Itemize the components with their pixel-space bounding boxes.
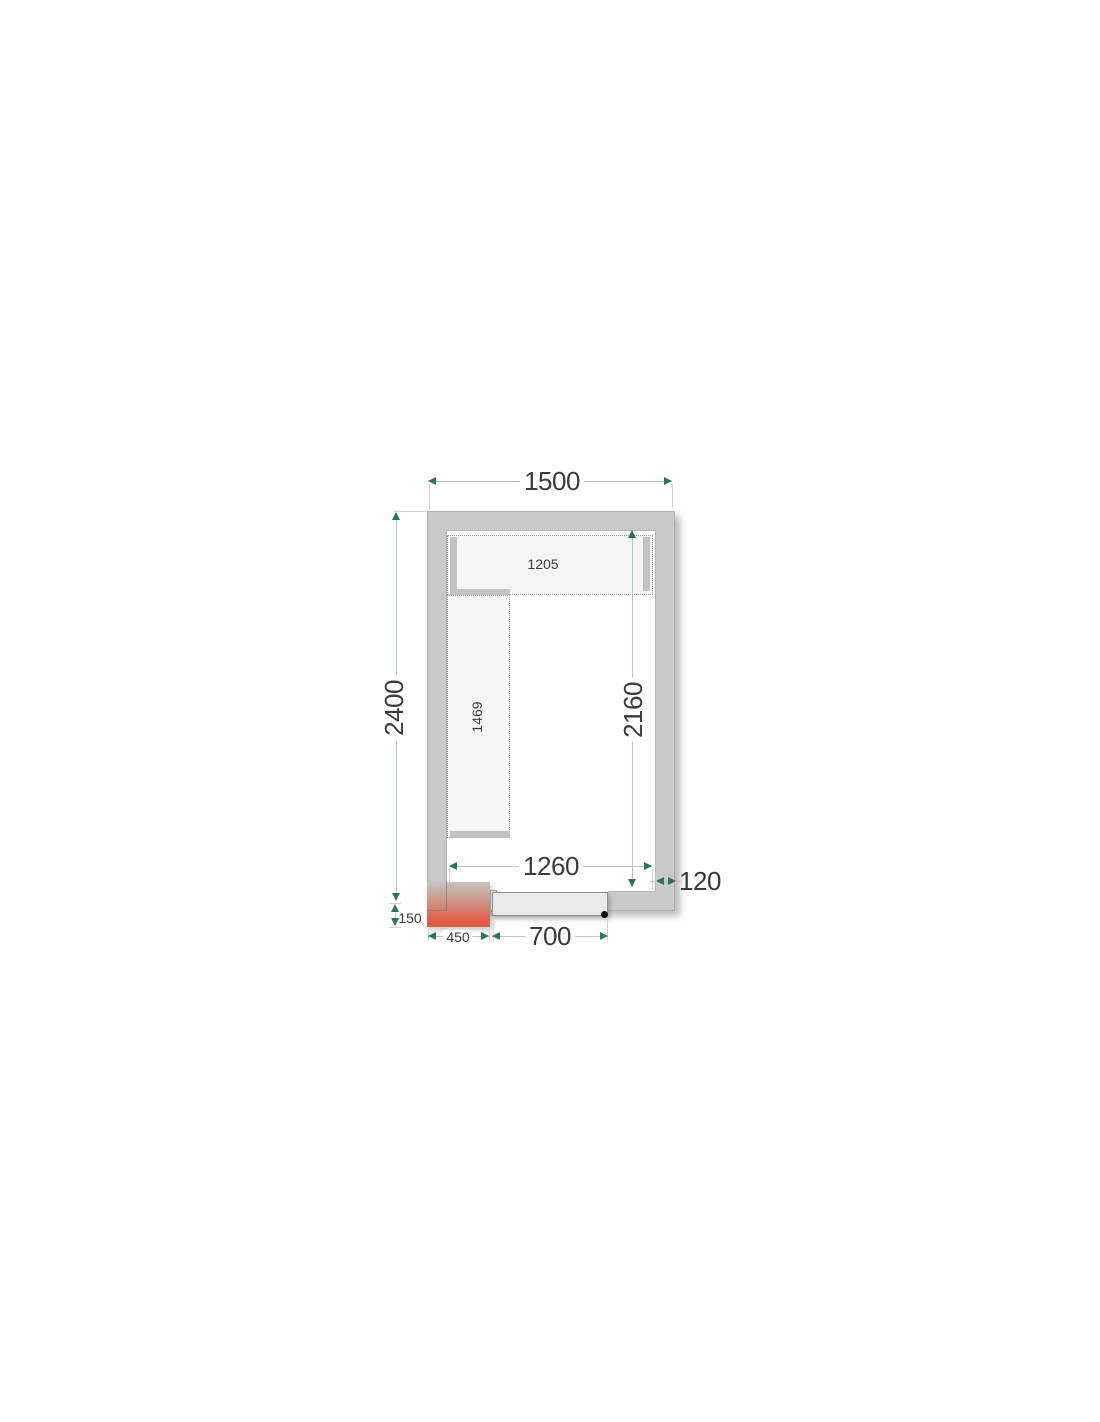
dim-inner-width-label: 1260 — [519, 853, 583, 879]
dim-inner-width-ext-right — [652, 869, 653, 890]
dim-inner-width-arrow-left-icon — [449, 862, 457, 870]
dim-outer-width-label: 1500 — [520, 468, 584, 494]
dim-outer-width-ext-left — [429, 484, 430, 510]
dim-wall-thickness-line — [650, 881, 681, 882]
dim-unit-width-arrow-right-icon — [481, 932, 489, 940]
dim-outer-depth-arrow-down-icon — [392, 893, 400, 901]
dim-wall-thickness-label: 120 — [679, 868, 721, 894]
dim-outer-width-arrow-right-icon — [664, 477, 672, 485]
door-leaf — [492, 892, 608, 916]
top-shelf-support-left — [450, 537, 457, 593]
dim-outer-depth-label: 2400 — [381, 676, 407, 740]
dim-door-width-label: 700 — [525, 923, 575, 949]
dim-wall-thickness-arrow-left-icon — [656, 877, 664, 885]
dim-door-width-arrow-left-icon — [492, 932, 500, 940]
left-shelf-length-label: 1469 — [470, 701, 484, 732]
dim-outer-depth-arrow-up-icon — [392, 512, 400, 520]
dim-inner-depth-arrow-down-icon — [628, 879, 636, 887]
dim-unit-width-arrow-left-icon — [428, 932, 436, 940]
top-shelf-support-right — [643, 537, 650, 591]
wall-edge-line — [427, 882, 447, 911]
dim-outer-width-arrow-left-icon — [428, 477, 436, 485]
dim-inner-width-arrow-right-icon — [644, 862, 652, 870]
dim-outer-width-ext-right — [672, 484, 673, 508]
dim-unit-height-label: 150 — [398, 911, 421, 925]
left-shelf-support-bottom — [450, 831, 510, 838]
dim-unit-width-ext-right — [489, 929, 490, 941]
dim-inner-depth-arrow-up-icon — [628, 530, 636, 538]
dim-unit-height-tick-bottom — [389, 927, 401, 928]
dim-inner-depth-line-top — [632, 531, 633, 678]
dim-unit-width-label: 450 — [443, 930, 472, 944]
door-hinge-dot — [601, 911, 608, 918]
floor-plan-canvas: 1205 1469 2160 2400 1500 1260 120 150 — [0, 0, 1100, 1422]
dim-inner-depth-label: 2160 — [620, 678, 646, 742]
dim-outer-depth-line-top — [396, 513, 397, 675]
top-shelf-length-label: 1205 — [527, 557, 558, 571]
dim-wall-thickness-arrow-right-icon — [668, 877, 676, 885]
dim-outer-depth-line-bottom — [396, 741, 397, 901]
dim-door-width-arrow-right-icon — [600, 932, 608, 940]
